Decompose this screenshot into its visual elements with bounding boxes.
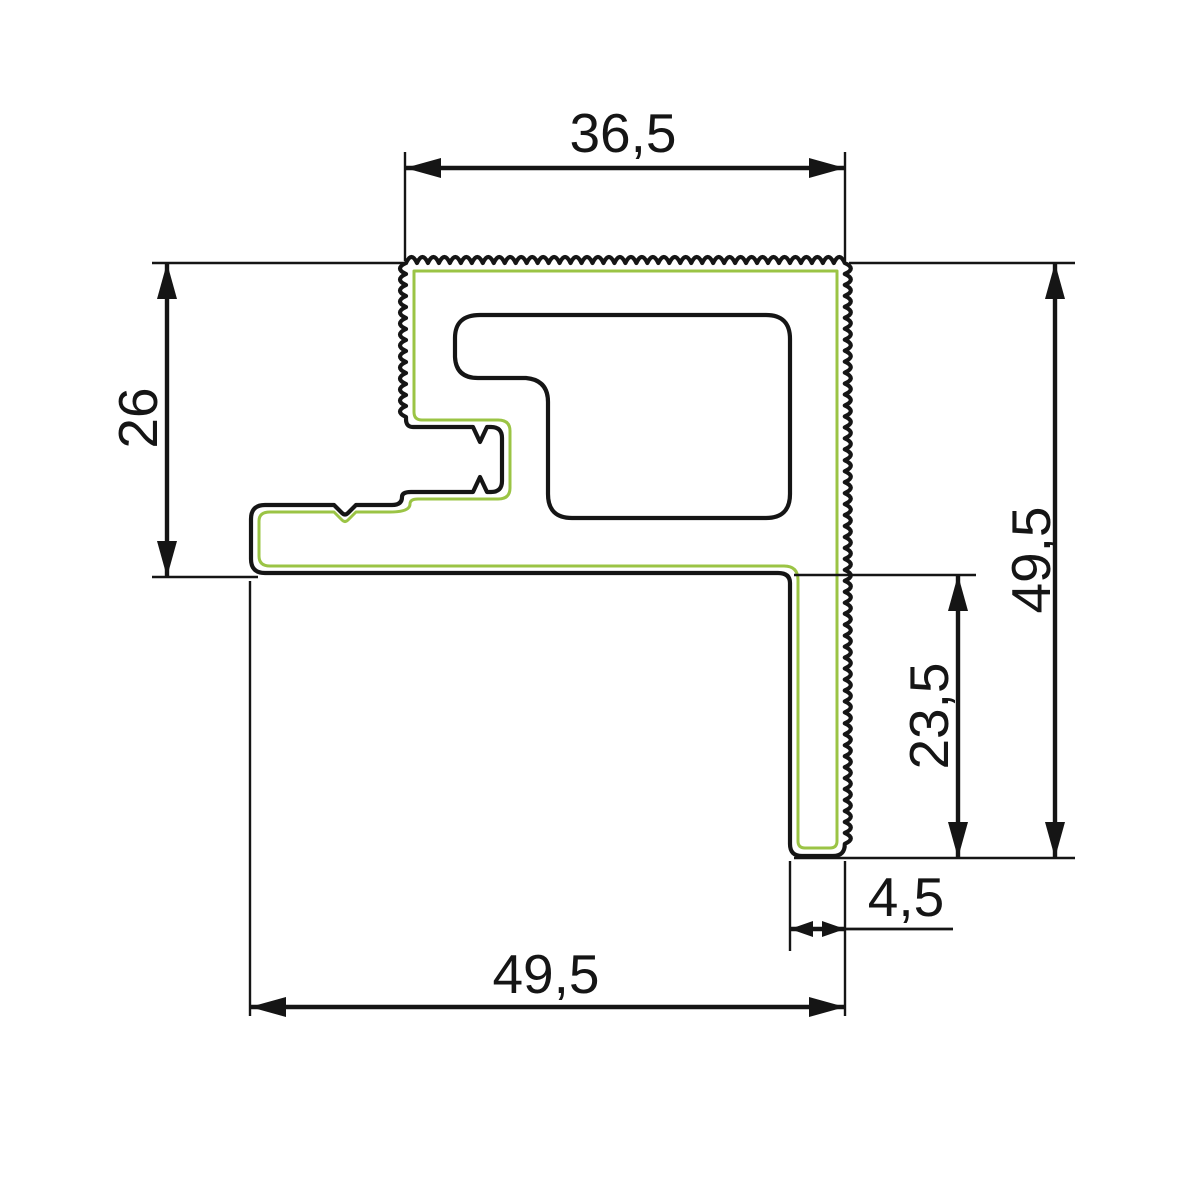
- arrowhead-icon: [809, 158, 845, 178]
- arrowhead-icon: [822, 921, 845, 937]
- dimension-label: 49,5: [1000, 506, 1062, 613]
- dimension-width-bottom: 49,5: [250, 581, 845, 1017]
- gasket-accent-line: [259, 271, 837, 848]
- dimension-width-leg: 4,5: [790, 861, 953, 951]
- dimension-label: 49,5: [492, 943, 599, 1005]
- profile-outer-contour: [251, 257, 851, 856]
- arrowhead-icon: [809, 997, 845, 1017]
- arrowhead-icon: [790, 921, 813, 937]
- dimension-label: 36,5: [569, 102, 676, 164]
- dimension-label: 23,5: [898, 662, 960, 769]
- drawing-canvas: 36,52649,523,54,549,5: [0, 0, 1200, 1200]
- arrowhead-icon: [157, 541, 177, 577]
- dimension-width-top: 36,5: [405, 102, 845, 261]
- arrowhead-icon: [948, 822, 968, 858]
- dimension-height-inner-right: 23,5: [794, 575, 976, 858]
- arrowhead-icon: [948, 575, 968, 611]
- arrowhead-icon: [157, 263, 177, 299]
- arrowhead-icon: [1045, 822, 1065, 858]
- arrowhead-icon: [405, 158, 441, 178]
- profile-technical-drawing: 36,52649,523,54,549,5: [0, 0, 1200, 1200]
- dimension-label: 26: [107, 387, 169, 448]
- arrowhead-icon: [1045, 263, 1065, 299]
- dimension-label: 4,5: [868, 866, 944, 928]
- profile-inner-cavity: [455, 315, 790, 518]
- arrowhead-icon: [250, 997, 286, 1017]
